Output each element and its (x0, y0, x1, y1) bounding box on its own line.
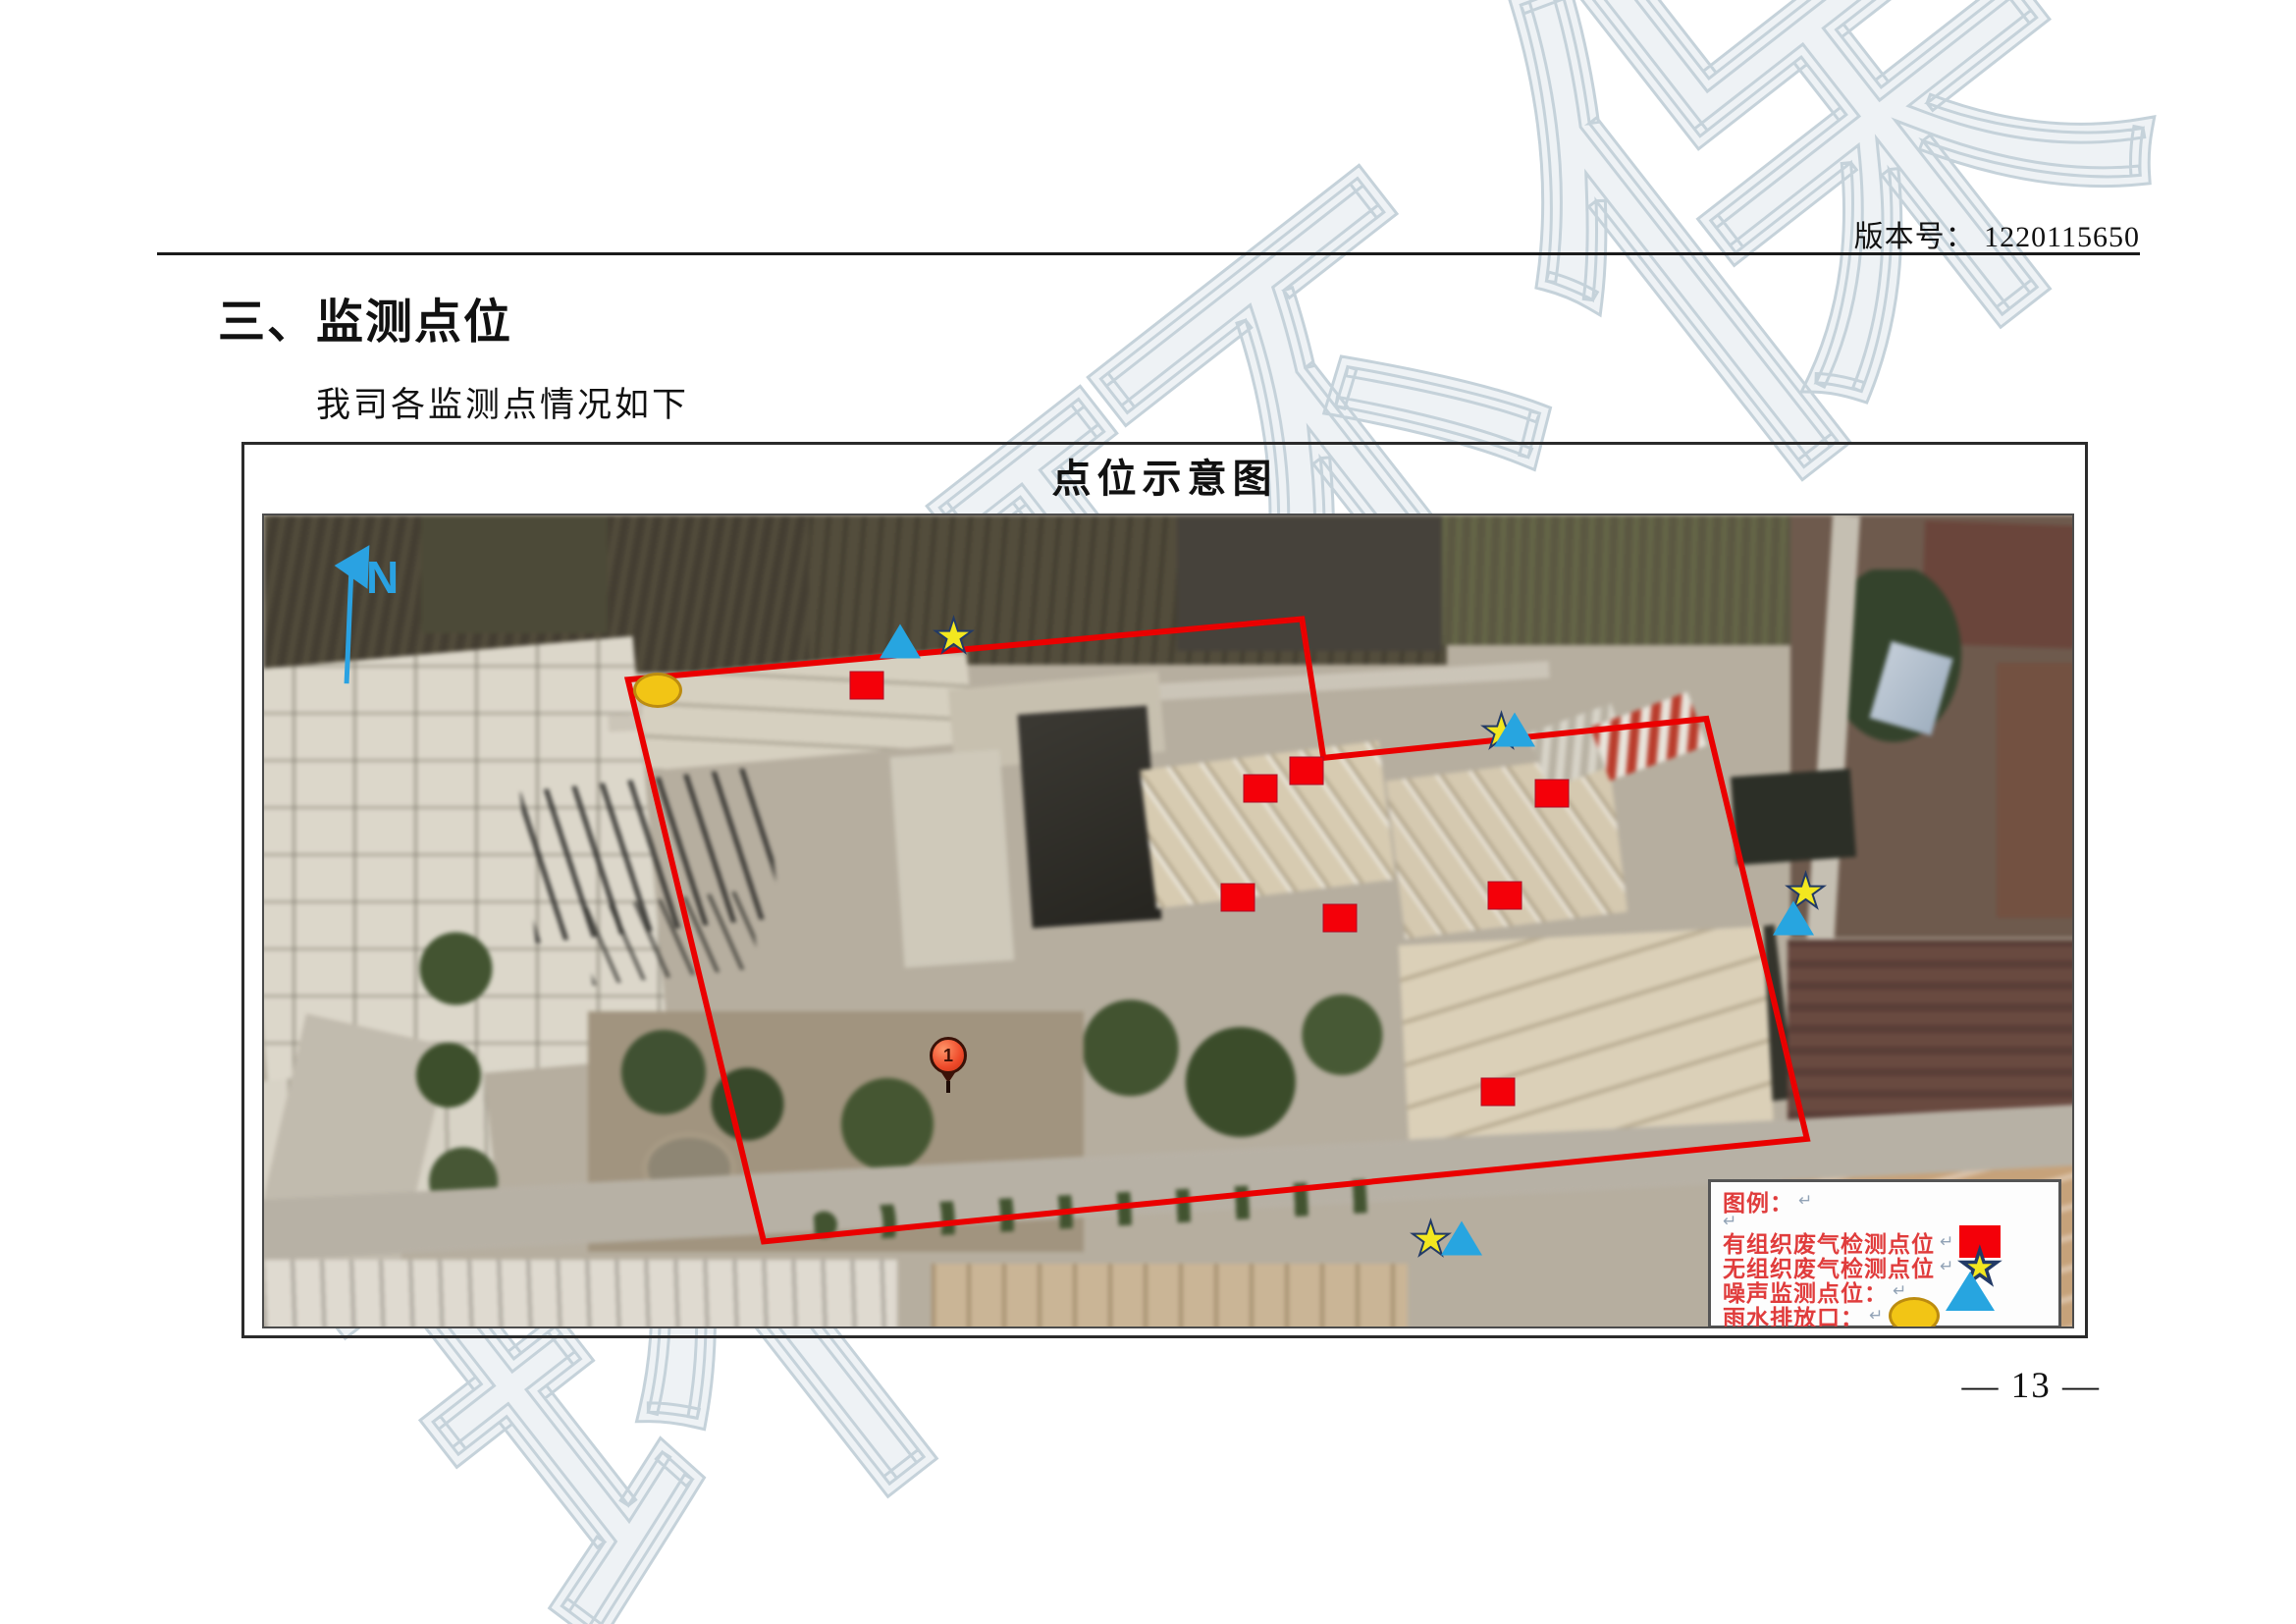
noise-point-marker (1773, 901, 1814, 936)
pin-head: 1 (930, 1037, 967, 1074)
pin-stem (946, 1081, 950, 1093)
figure-box: 点位示意图 (241, 442, 2088, 1338)
section-title: 三、监测点位 (218, 283, 512, 352)
page-number: — 13 — (1962, 1365, 2102, 1407)
paragraph-mark-icon: ↵ (1940, 1232, 1954, 1252)
organized-gas-point-marker (1488, 882, 1522, 910)
organized-gas-point-marker (1323, 904, 1358, 933)
noise-point-marker (1494, 713, 1535, 747)
header-rule (157, 252, 2140, 255)
figure-title: 点位示意图 (244, 445, 2085, 514)
legend-label: 雨水排放口： (1723, 1299, 1864, 1329)
organized-gas-point-marker (850, 672, 884, 700)
map-legend: 图例： ↵ ↵ 有组织废气检测点位 ↵ 无组织废气检测点位 ↵ 噪声监测 (1708, 1179, 2061, 1328)
rainwater-outlet-marker (633, 673, 682, 708)
satellite-photo: N 1 图例： ↵ ↵ 有组织废气 (262, 514, 2074, 1328)
legend-heading-row: 图例： ↵ (1723, 1188, 2049, 1213)
organized-gas-point-marker (1535, 780, 1570, 808)
version-number: 版本号： 1220115650 (1854, 212, 2140, 255)
organized-gas-point-marker (1221, 884, 1255, 912)
organized-gas-point-marker (1290, 757, 1324, 785)
organized-gas-point-marker (1481, 1078, 1516, 1107)
paragraph-mark-icon: ↵ (1869, 1306, 1884, 1326)
organized-gas-point-marker (1244, 775, 1278, 803)
intro-text: 我司各监测点情况如下 (316, 377, 689, 427)
noise-point-marker (880, 624, 921, 659)
report-page: 环保 环保 版本号： 1220115650 三、监测点位 我司各监测点情况如下 … (0, 0, 2296, 1624)
blue-triangle-icon (1946, 1272, 1995, 1311)
location-pin-icon: 1 (930, 1037, 967, 1093)
pin-number: 1 (943, 1046, 953, 1066)
noise-point-marker (1441, 1221, 1482, 1256)
paragraph-mark-icon: ↵ (1798, 1191, 1813, 1211)
